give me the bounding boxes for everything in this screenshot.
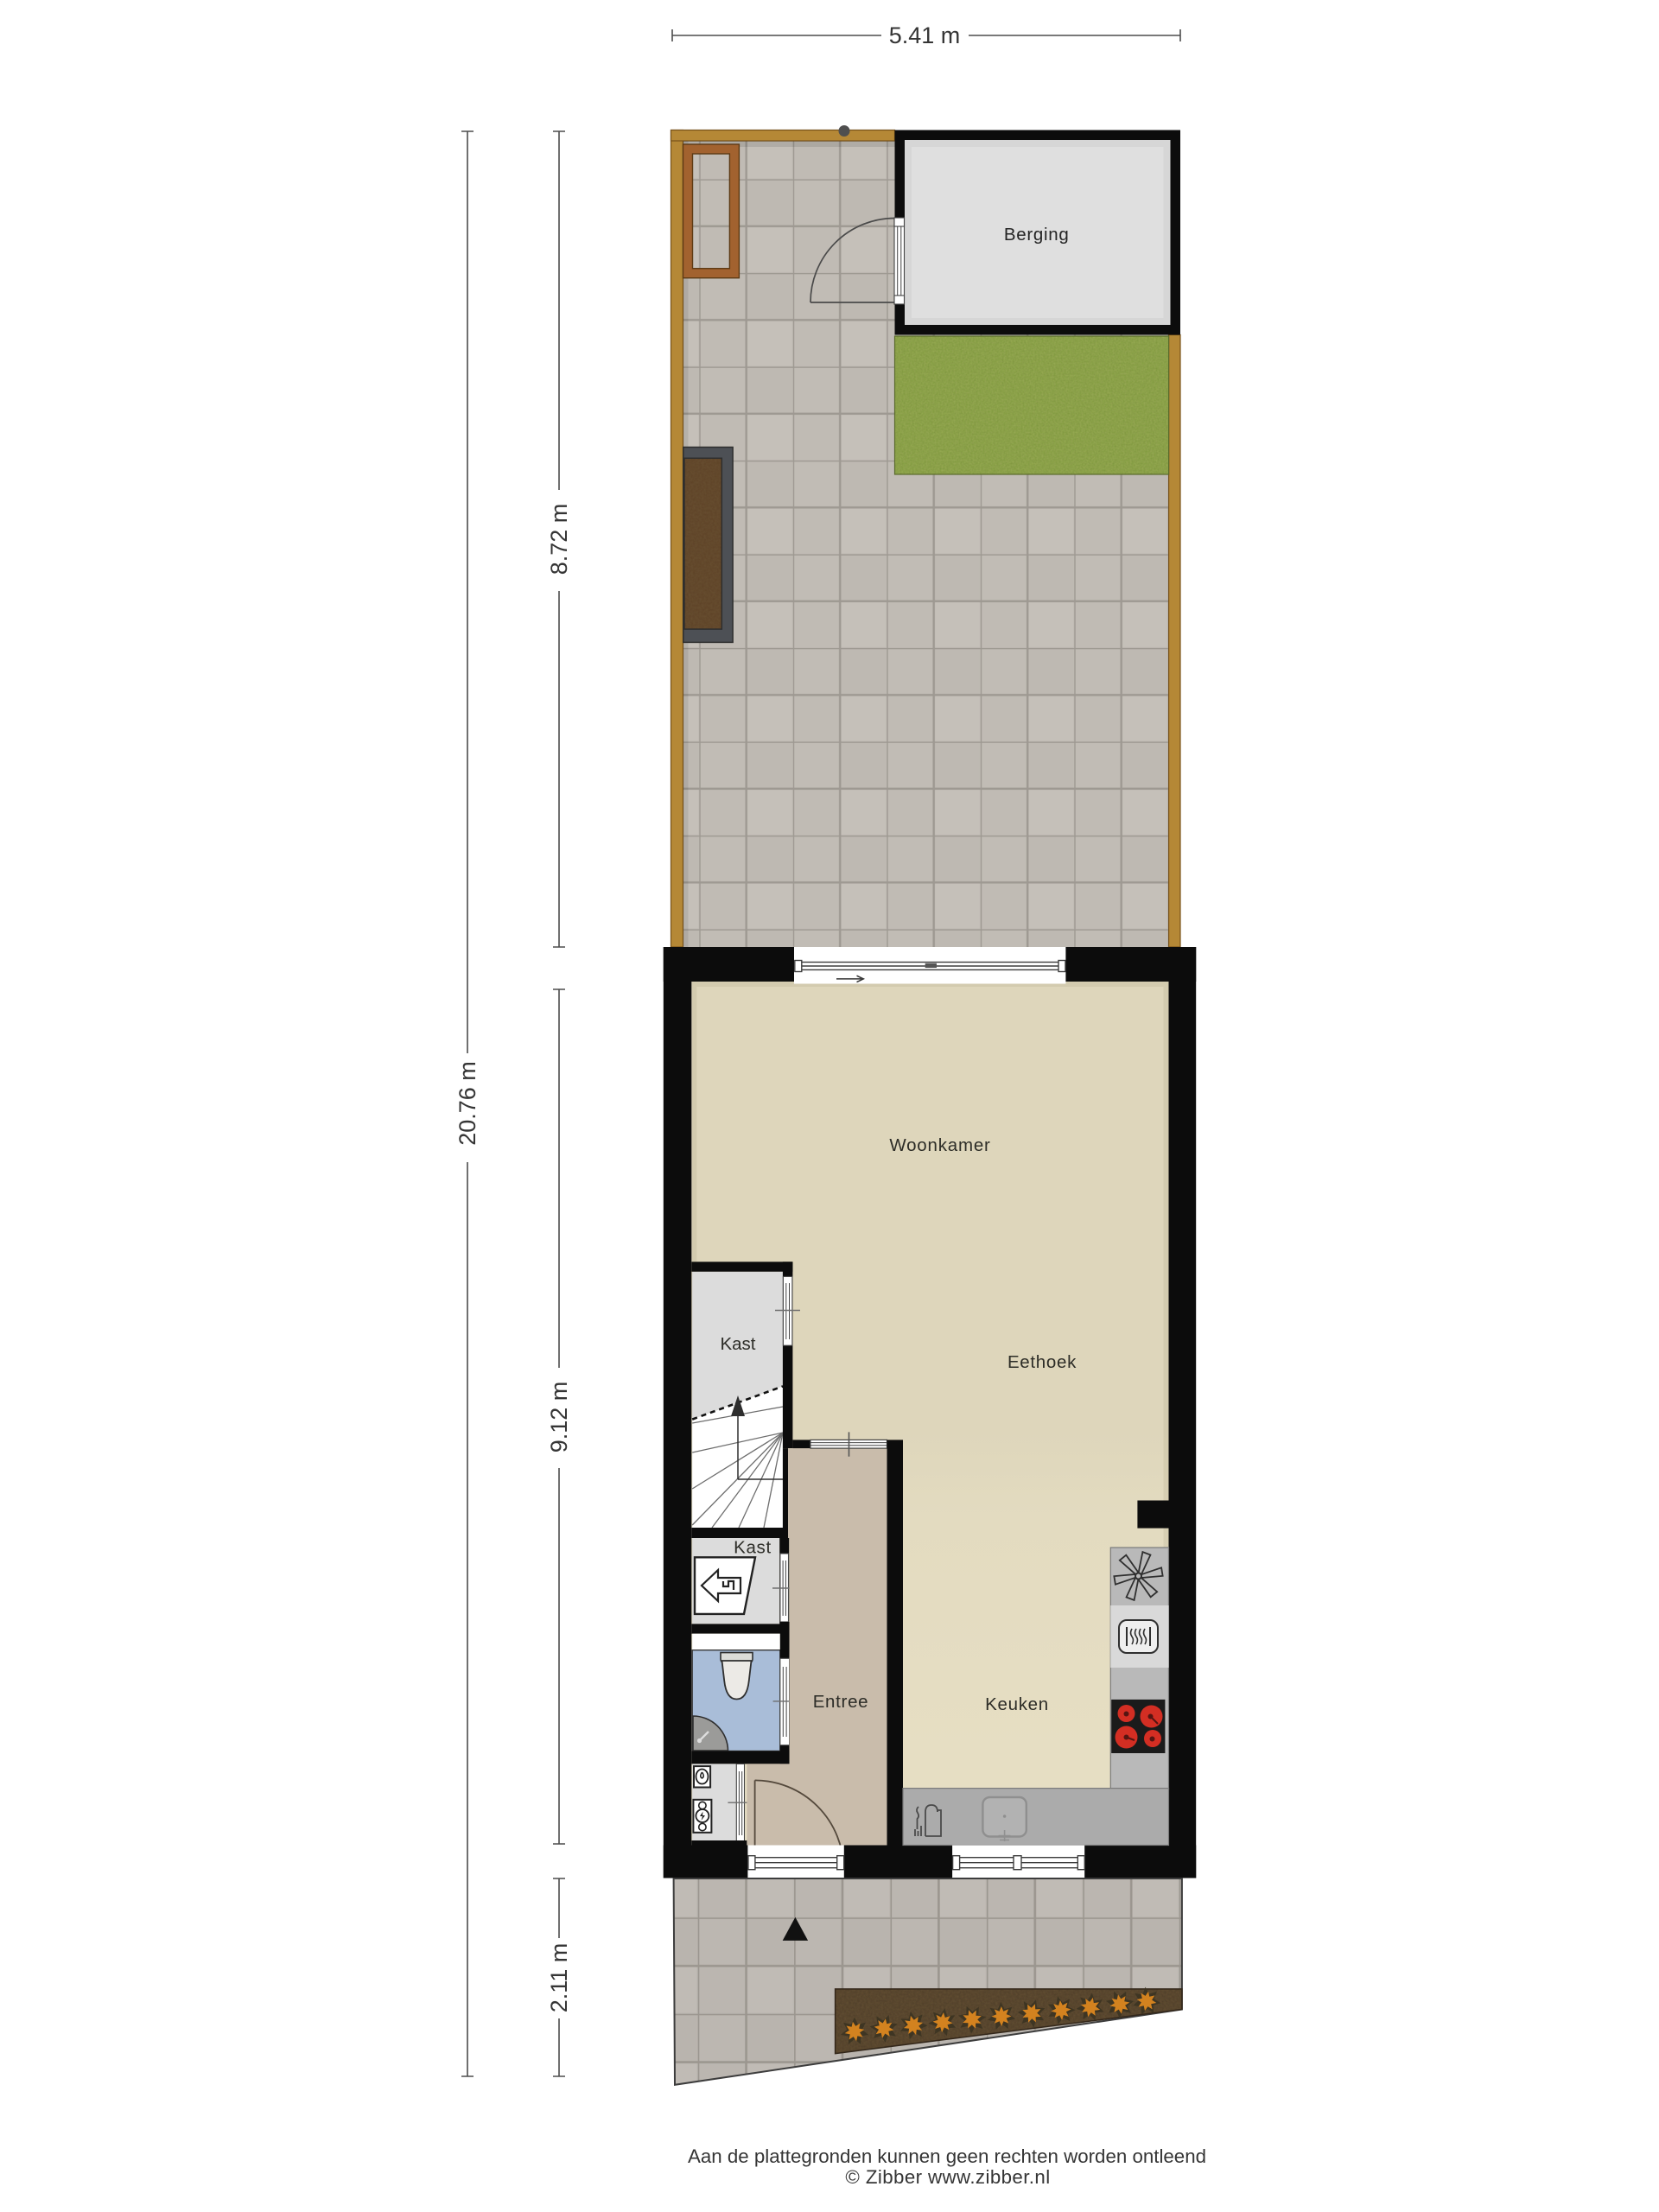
svg-text:20.76 m: 20.76 m bbox=[454, 1061, 480, 1146]
svg-text:Aan de plattegronden kunnen ge: Aan de plattegronden kunnen geen rechten… bbox=[688, 2145, 1206, 2167]
svg-text:2.11 m: 2.11 m bbox=[546, 1943, 572, 2013]
svg-text:Kast: Kast bbox=[720, 1334, 755, 1354]
svg-text:Woonkamer: Woonkamer bbox=[889, 1135, 990, 1155]
svg-text:9.12 m: 9.12 m bbox=[546, 1382, 572, 1453]
svg-text:Berging: Berging bbox=[1004, 225, 1070, 245]
svg-text:8.72 m: 8.72 m bbox=[546, 504, 572, 575]
svg-text:Eethoek: Eethoek bbox=[1007, 1352, 1077, 1372]
svg-text:5.41 m: 5.41 m bbox=[889, 22, 961, 48]
svg-text:Entree: Entree bbox=[813, 1692, 869, 1712]
svg-text:Keuken: Keuken bbox=[985, 1694, 1049, 1714]
svg-text:Kast: Kast bbox=[734, 1538, 772, 1558]
svg-text:© Zibber www.zibber.nl: © Zibber www.zibber.nl bbox=[845, 2166, 1050, 2188]
